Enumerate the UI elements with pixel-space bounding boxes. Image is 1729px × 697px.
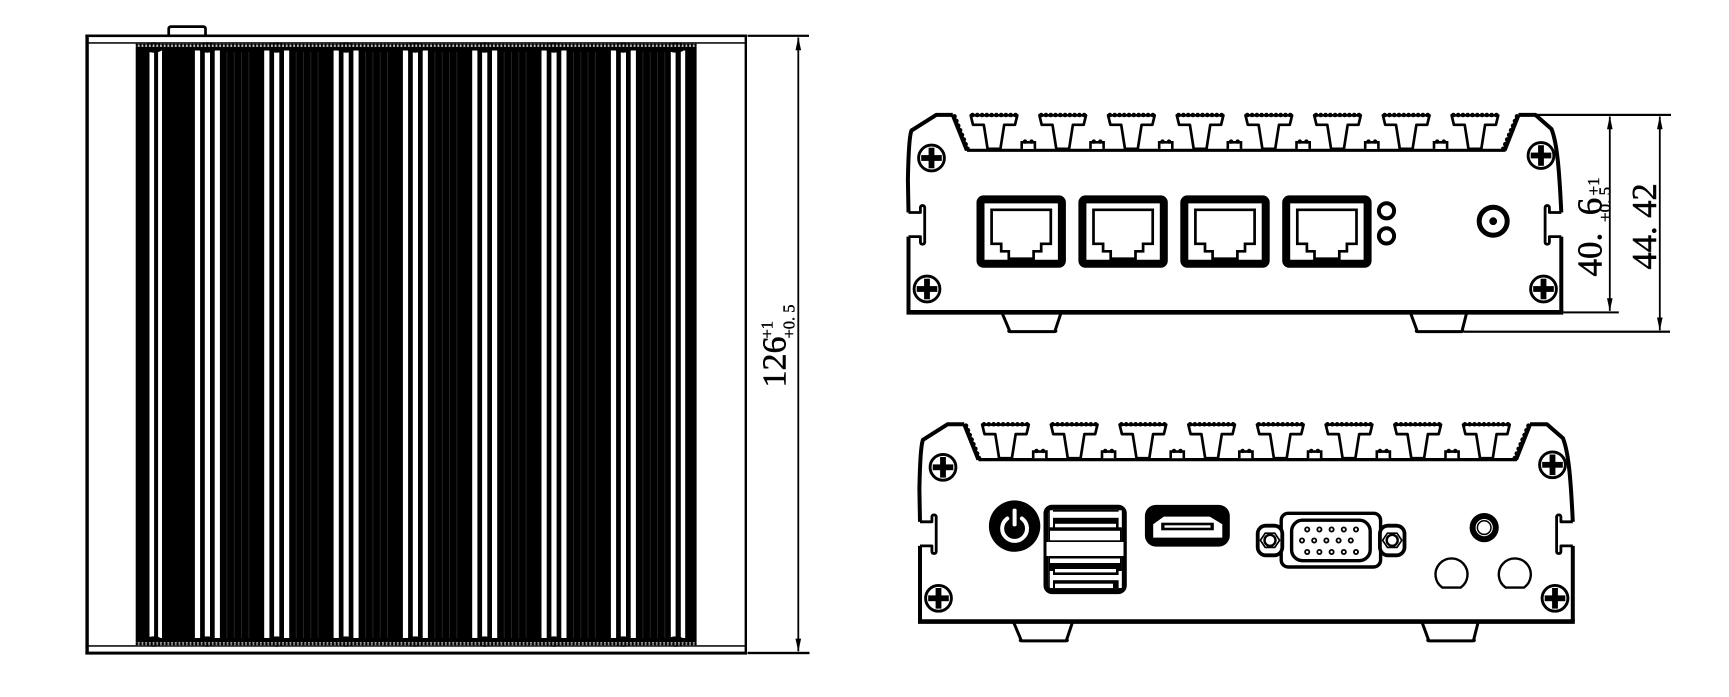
- svg-text:+1: +1: [757, 321, 776, 339]
- svg-text:44. 42: 44. 42: [1626, 183, 1664, 269]
- svg-text:+0. 5: +0. 5: [780, 304, 799, 338]
- svg-text:126: 126: [757, 337, 794, 388]
- svg-text:+0. 5: +0. 5: [1596, 187, 1615, 222]
